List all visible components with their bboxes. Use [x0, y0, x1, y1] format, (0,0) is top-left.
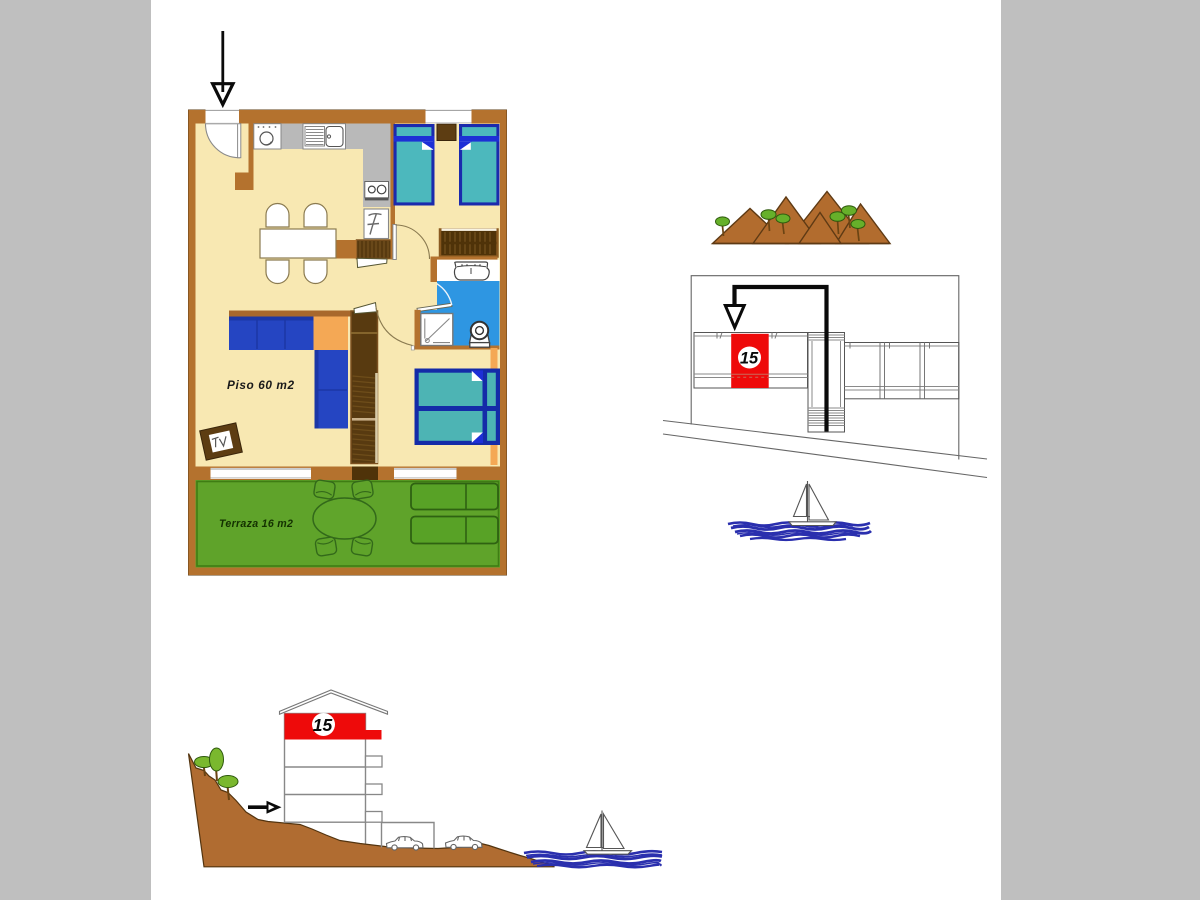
svg-text:15: 15: [740, 350, 759, 368]
svg-text:Piso 60 m2: Piso 60 m2: [227, 378, 295, 392]
svg-text:15: 15: [313, 715, 333, 735]
svg-text:Terraza 16 m2: Terraza 16 m2: [219, 518, 293, 530]
